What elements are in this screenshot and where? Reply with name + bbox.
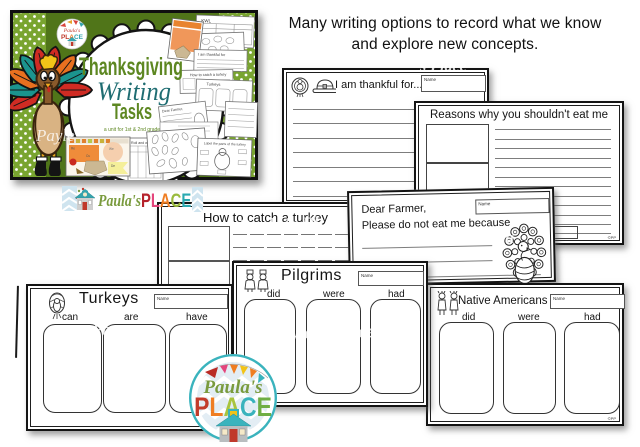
svg-text:I am thankful for: I am thankful for [198,53,226,57]
svg-text:Cs: Cs [86,154,90,158]
svg-text:How to catch a turkey: How to catch a turkey [190,73,227,78]
svg-text:Tasks: Tasks [112,99,152,124]
svg-text:Payle: Payle [35,126,75,145]
svg-text:a unit for 1st & 2nd grade: a unit for 1st & 2nd grade [104,127,160,133]
svg-text:PLACE: PLACE [141,190,191,211]
svg-text:Re: Re [71,147,75,151]
svg-text:De: De [111,164,115,168]
svg-text:We: We [109,147,114,151]
svg-text:Turkeys: Turkeys [206,81,220,86]
svg-text:Paula's: Paula's [97,191,141,210]
